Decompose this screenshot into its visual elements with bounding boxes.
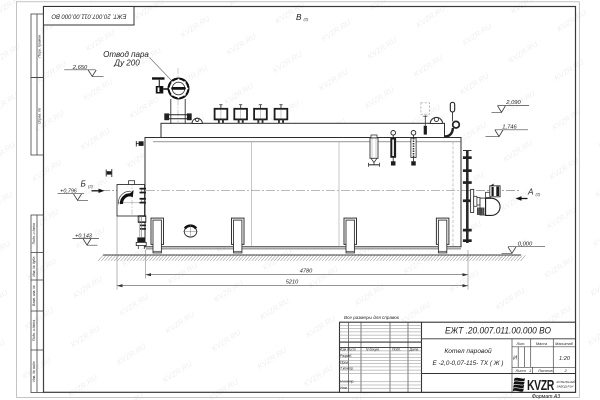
svg-text:Н.контр.: Н.контр. — [340, 380, 354, 384]
svg-text:Листов: Листов — [537, 368, 553, 373]
svg-text:4780: 4780 — [300, 268, 313, 274]
svg-text:Все размеры для справок: Все размеры для справок — [344, 315, 400, 320]
svg-text:Подп.: Подп. — [392, 348, 401, 352]
svg-text:5210: 5210 — [286, 280, 299, 286]
svg-text:Инв. № дубл.: Инв. № дубл. — [32, 256, 36, 277]
svg-text:Изм Лист: Изм Лист — [340, 348, 356, 352]
svg-text:И: И — [513, 356, 517, 362]
svg-text:Утв.: Утв. — [340, 386, 348, 390]
svg-text:Справ. №: Справ. № — [38, 108, 42, 124]
svg-text:Масса: Масса — [536, 342, 547, 346]
svg-text:ЕЖТ. 20.007.011.00.000 ВО: ЕЖТ. 20.007.011.00.000 ВО — [51, 12, 126, 19]
svg-text:2,090: 2,090 — [505, 100, 521, 106]
svg-text:ЗАВОД РЭУ: ЗАВОД РЭУ — [557, 385, 575, 389]
svg-text:Взам. инв. №: Взам. инв. № — [32, 285, 36, 306]
svg-text:(2): (2) — [536, 192, 542, 197]
svg-text:Формат А3: Формат А3 — [532, 394, 560, 400]
svg-text:Разраб.: Разраб. — [340, 354, 352, 358]
svg-text:Перв. примен.: Перв. примен. — [38, 34, 42, 58]
svg-text:Б: Б — [81, 180, 87, 189]
svg-text:Ду 200: Ду 200 — [113, 58, 140, 67]
svg-text:KVZR: KVZR — [527, 378, 555, 394]
svg-text:Т.контр.: Т.контр. — [340, 367, 354, 371]
svg-text:Лист: Лист — [515, 368, 527, 373]
svg-text:(2): (2) — [88, 184, 94, 189]
svg-text:Подп. и дата: Подп. и дата — [32, 320, 36, 341]
svg-text:А: А — [527, 188, 534, 197]
svg-text:Дата: Дата — [409, 348, 419, 352]
svg-text:1: 1 — [529, 368, 531, 373]
svg-text:В: В — [296, 13, 302, 22]
svg-text:КОТЕЛЬНЫЙ: КОТЕЛЬНЫЙ — [557, 380, 577, 384]
svg-text:1,746: 1,746 — [502, 124, 517, 130]
svg-text:Подп. и дата: Подп. и дата — [32, 223, 36, 244]
svg-text:Е -2,0-0,07-115- ТХ ( Ж ): Е -2,0-0,07-115- ТХ ( Ж ) — [433, 361, 504, 367]
svg-text:Лит.: Лит. — [516, 342, 526, 346]
svg-text:1:20: 1:20 — [559, 356, 571, 362]
svg-text:Инв. № подл.: Инв. № подл. — [32, 361, 36, 382]
svg-text:ЕЖТ .20.007.011.00.000 ВО: ЕЖТ .20.007.011.00.000 ВО — [445, 326, 551, 336]
svg-text:Пров.: Пров. — [340, 360, 349, 364]
svg-text:N докум.: N докум. — [366, 348, 380, 352]
svg-text:Котел паровой: Котел паровой — [444, 347, 492, 355]
svg-text:Масштаб: Масштаб — [555, 342, 574, 346]
svg-text:(2): (2) — [304, 17, 310, 22]
